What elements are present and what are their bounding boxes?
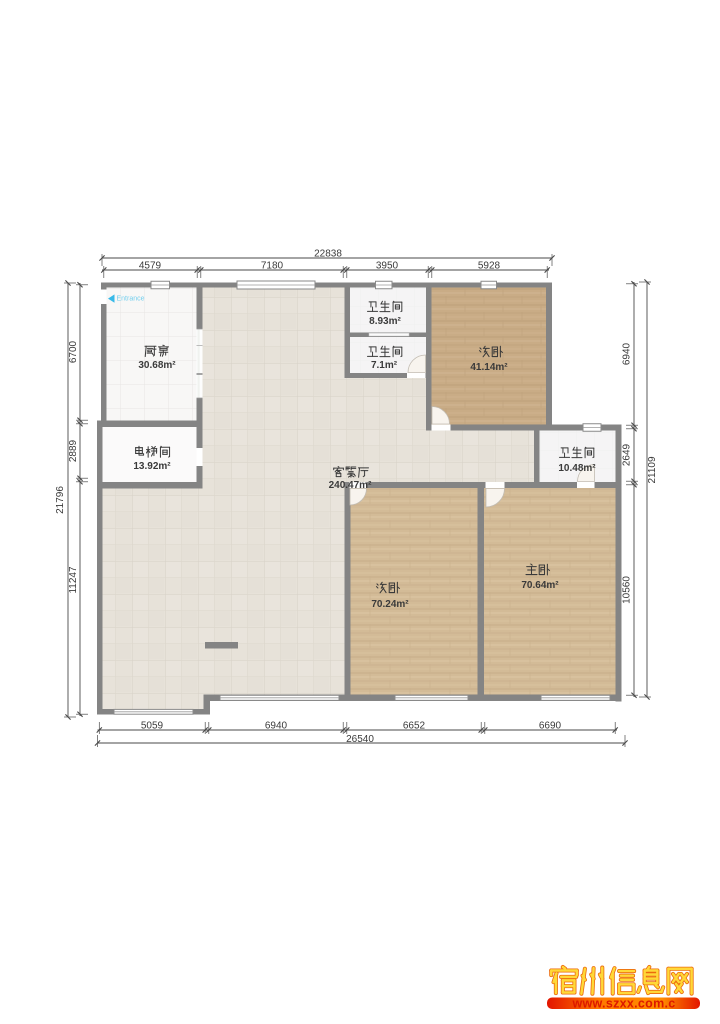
svg-text:30.68m²: 30.68m² bbox=[138, 360, 176, 371]
svg-text:4579: 4579 bbox=[139, 261, 162, 272]
svg-text:6690: 6690 bbox=[539, 721, 562, 732]
svg-text:13.92m²: 13.92m² bbox=[133, 461, 171, 472]
svg-text:10560: 10560 bbox=[622, 576, 633, 604]
svg-text:21796: 21796 bbox=[55, 486, 66, 514]
svg-text:240.47m²: 240.47m² bbox=[329, 480, 372, 491]
svg-text:2649: 2649 bbox=[622, 443, 633, 466]
svg-text:8.93m²: 8.93m² bbox=[369, 316, 401, 327]
svg-text:26540: 26540 bbox=[346, 734, 374, 745]
svg-text:6652: 6652 bbox=[403, 721, 426, 732]
svg-text:Entrance: Entrance bbox=[117, 295, 145, 302]
svg-text:41.14m²: 41.14m² bbox=[470, 362, 508, 373]
svg-text:10.48m²: 10.48m² bbox=[558, 463, 596, 474]
svg-text:6940: 6940 bbox=[622, 342, 633, 365]
svg-text:2889: 2889 bbox=[68, 439, 79, 462]
svg-text:7180: 7180 bbox=[261, 261, 284, 272]
svg-text:70.64m²: 70.64m² bbox=[521, 580, 559, 591]
svg-text:22838: 22838 bbox=[314, 249, 342, 260]
svg-text:5059: 5059 bbox=[141, 721, 164, 732]
svg-text:70.24m²: 70.24m² bbox=[371, 599, 409, 610]
svg-text:3950: 3950 bbox=[376, 261, 399, 272]
svg-text:21109: 21109 bbox=[647, 456, 658, 484]
svg-text:6700: 6700 bbox=[68, 340, 79, 363]
svg-text:11247: 11247 bbox=[68, 566, 79, 594]
svg-text:5928: 5928 bbox=[478, 261, 501, 272]
svg-text:6940: 6940 bbox=[265, 721, 288, 732]
svg-text:www.szxx.com.c: www.szxx.com.c bbox=[571, 997, 675, 1011]
svg-text:7.1m²: 7.1m² bbox=[371, 360, 398, 371]
